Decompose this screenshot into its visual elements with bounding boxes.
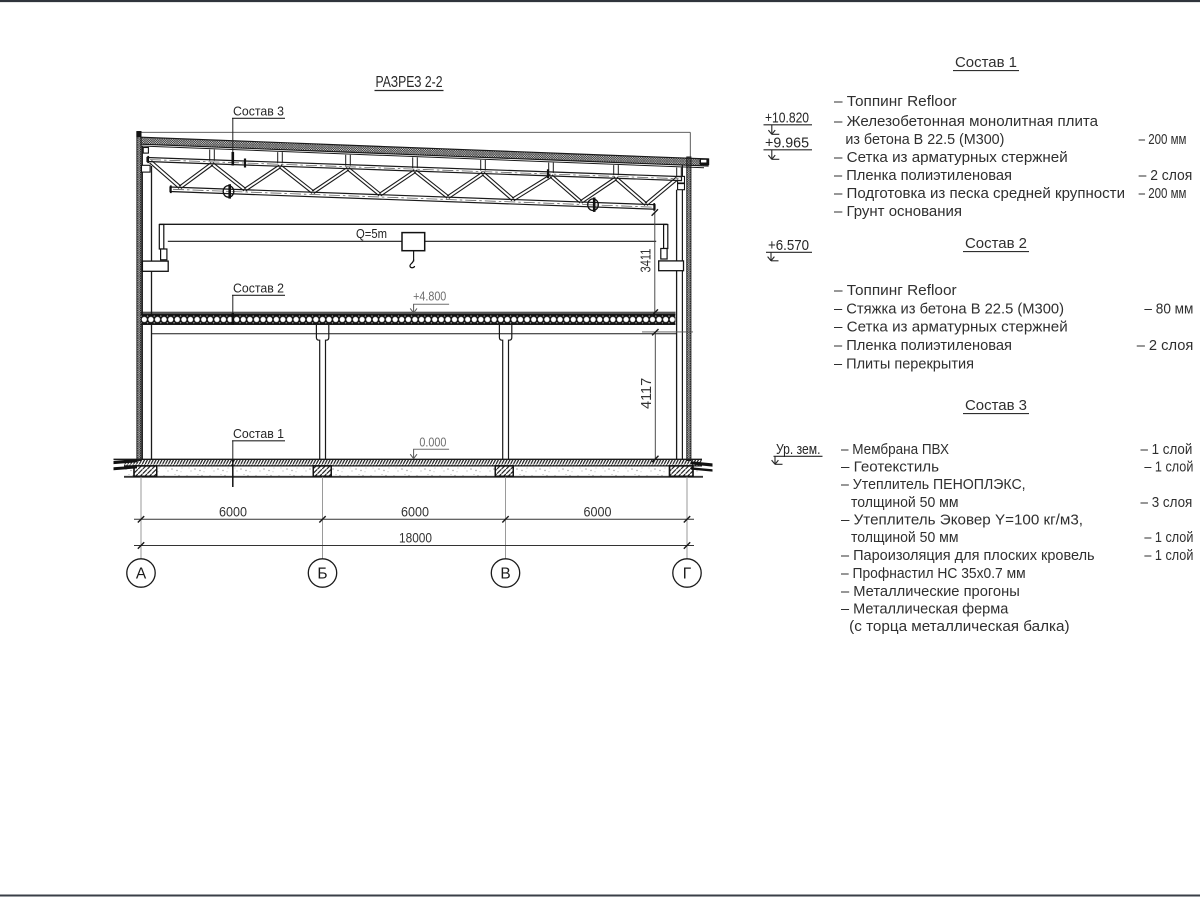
svg-text:(с торца металлическая балка): (с торца металлическая балка) xyxy=(849,618,1069,635)
svg-text:– Пленка полиэтиленовая: – Пленка полиэтиленовая xyxy=(834,337,1012,354)
svg-text:Состав 3: Состав 3 xyxy=(233,104,284,119)
svg-text:– Мембрана ПВХ: – Мембрана ПВХ xyxy=(841,441,949,458)
svg-text:толщиной 50 мм: толщиной 50 мм xyxy=(851,529,959,546)
svg-text:Состав 3: Состав 3 xyxy=(965,397,1027,414)
svg-text:6000: 6000 xyxy=(219,504,247,520)
svg-text:+10.820: +10.820 xyxy=(765,109,809,126)
svg-text:– Сетка из арматурных стержней: – Сетка из арматурных стержней xyxy=(834,319,1068,336)
svg-text:Состав 2: Состав 2 xyxy=(233,281,284,296)
svg-text:– 1 слой: – 1 слой xyxy=(1144,459,1193,476)
svg-text:из бетона В 22.5 (М300): из бетона В 22.5 (М300) xyxy=(845,131,1004,148)
svg-text:– Сетка из арматурных стержней: – Сетка из арматурных стержней xyxy=(834,149,1068,166)
svg-text:РАЗРЕЗ 2-2: РАЗРЕЗ 2-2 xyxy=(376,74,443,91)
svg-text:– 1 слой: – 1 слой xyxy=(1144,529,1193,546)
svg-text:– Железобетонная монолитная п: – Железобетонная монолитная плита xyxy=(834,113,1099,130)
svg-text:Состав 1: Состав 1 xyxy=(955,54,1017,71)
svg-text:– 1 слой: – 1 слой xyxy=(1144,547,1193,564)
svg-text:– Металлические прогоны: – Металлические прогоны xyxy=(841,583,1020,600)
svg-text:+4.800: +4.800 xyxy=(413,289,446,304)
svg-text:– Утеплитель ПЕНОПЛЭКС,: – Утеплитель ПЕНОПЛЭКС, xyxy=(841,476,1026,493)
svg-text:толщиной 50 мм: толщиной 50 мм xyxy=(851,494,959,511)
svg-text:– Подготовка из песка средней: – Подготовка из песка средней крупности xyxy=(834,185,1125,202)
svg-text:– Металлическая ферма: – Металлическая ферма xyxy=(841,601,1009,618)
svg-text:6000: 6000 xyxy=(401,504,429,520)
svg-text:– Топпинг Refloor: – Топпинг Refloor xyxy=(834,282,957,299)
svg-text:– Утеплитель Эковер Y=100 кг/м: – Утеплитель Эковер Y=100 кг/м3, xyxy=(841,512,1083,529)
svg-text:– Геотекстиль: – Геотекстиль xyxy=(841,459,939,476)
svg-text:– 3 слоя: – 3 слоя xyxy=(1141,494,1193,511)
svg-text:18000: 18000 xyxy=(399,530,432,546)
svg-text:0.000: 0.000 xyxy=(419,434,446,449)
svg-text:А: А xyxy=(136,565,147,582)
svg-text:– Плиты перекрытия: – Плиты перекрытия xyxy=(834,356,974,373)
svg-text:– 200 мм: – 200 мм xyxy=(1139,131,1187,148)
svg-text:– Грунт основания: – Грунт основания xyxy=(834,203,962,220)
svg-text:Г: Г xyxy=(683,565,692,582)
svg-text:– Стяжка из бетона В 22.5 (М30: – Стяжка из бетона В 22.5 (М300) xyxy=(834,301,1064,318)
svg-text:+6.570: +6.570 xyxy=(768,237,809,254)
svg-text:– Пароизоляция для плоских кро: – Пароизоляция для плоских кровель xyxy=(841,547,1095,564)
svg-text:Состав 2: Состав 2 xyxy=(965,235,1027,252)
svg-text:– 2 слоя: – 2 слоя xyxy=(1137,337,1194,354)
svg-text:Б: Б xyxy=(317,565,327,582)
svg-text:4117: 4117 xyxy=(639,378,655,409)
svg-text:– 2 слоя: – 2 слоя xyxy=(1139,167,1193,184)
svg-text:+9.965: +9.965 xyxy=(765,134,809,151)
svg-text:– Пленка полиэтиленовая: – Пленка полиэтиленовая xyxy=(834,167,1012,184)
svg-text:– 80 мм: – 80 мм xyxy=(1144,301,1193,318)
svg-text:Ур. зем.: Ур. зем. xyxy=(776,441,821,458)
svg-text:– Топпинг Refloor: – Топпинг Refloor xyxy=(834,93,957,110)
svg-text:3411: 3411 xyxy=(639,249,655,273)
svg-text:В: В xyxy=(500,565,510,582)
svg-text:– 200 мм: – 200 мм xyxy=(1139,185,1187,202)
svg-text:– Профнастил НС 35х0.7 мм: – Профнастил НС 35х0.7 мм xyxy=(841,565,1026,582)
svg-text:Состав 1: Состав 1 xyxy=(233,426,284,441)
svg-text:6000: 6000 xyxy=(584,504,612,520)
svg-text:– 1 слой: – 1 слой xyxy=(1141,441,1193,458)
svg-text:Q=5m: Q=5m xyxy=(356,227,387,241)
